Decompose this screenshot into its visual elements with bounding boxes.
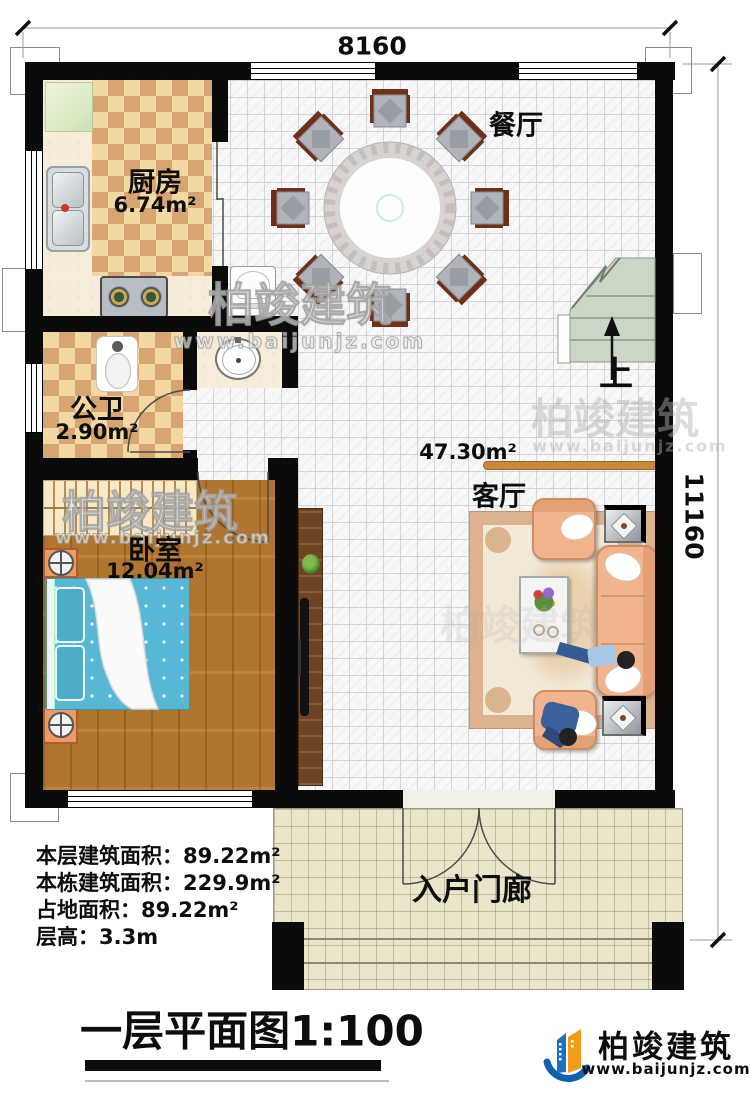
side-table-bottom-dot	[620, 715, 626, 721]
stove-burner	[140, 286, 162, 308]
window-top-1	[250, 62, 376, 80]
table-cup	[547, 626, 559, 638]
rug-corner	[485, 687, 511, 713]
porch-step-line	[303, 938, 653, 940]
armchair-top	[532, 498, 596, 560]
washbasin-drain	[236, 358, 241, 363]
brand-url: www.baijunjz.com	[581, 1060, 750, 1078]
page-title-main: 一层平面图	[80, 1007, 290, 1056]
window-bottom-bedroom	[67, 790, 253, 808]
stairs-up-label: 上	[599, 347, 633, 396]
room-label-porch: 入户门廊	[412, 865, 532, 909]
porch-step-line	[303, 962, 653, 964]
dimension-top-label: 8160	[337, 32, 407, 61]
armchair-back	[535, 736, 595, 748]
front-door-opening	[403, 790, 555, 808]
sofa-three-seat	[596, 545, 658, 697]
bed	[46, 578, 190, 710]
plant	[302, 554, 320, 574]
wall-kitchen-right-upper	[212, 80, 228, 142]
refrigerator	[230, 266, 276, 316]
sink-faucet	[61, 204, 69, 212]
window-top-2	[518, 62, 638, 80]
column-box	[673, 253, 702, 314]
info-line: 本栋建筑面积：229.9m²	[36, 870, 281, 897]
room-label-living: 客厅	[472, 475, 526, 514]
kitchen-sink	[46, 166, 90, 252]
refrigerator-top	[236, 271, 270, 299]
wall-niche-right	[282, 332, 298, 388]
stove-burner	[108, 286, 130, 308]
nightstand	[43, 548, 78, 578]
tv	[300, 598, 309, 716]
sink-basin	[52, 172, 84, 208]
room-label-dining: 餐厅	[489, 104, 543, 143]
wall-kitchen-right-lower	[212, 266, 228, 316]
squat-toilet	[96, 336, 138, 392]
page-title: 一层平面图1:100	[80, 998, 424, 1059]
refrigerator-detail	[237, 303, 269, 309]
room-area-bathroom: 2.90m²	[56, 420, 139, 444]
page-title-scale: 1:100	[290, 1007, 424, 1056]
window-left-bathroom	[25, 363, 43, 433]
floor-plan-canvas: 柏竣建筑 www.baijunjz.com 柏竣建筑 www.baijunjz.…	[0, 0, 750, 1095]
wall-kitchen-bottom	[43, 316, 298, 332]
armchair-bottom	[533, 690, 597, 750]
sink-basin	[52, 210, 84, 246]
washbasin-tap	[235, 337, 241, 343]
nightstand-knob	[48, 550, 74, 576]
info-line: 层高：3.3m	[36, 924, 281, 951]
info-line: 占地面积：89.22m²	[36, 897, 281, 924]
sofa-seat-line	[601, 595, 645, 597]
wall-bedroom-top-left	[43, 458, 198, 480]
kitchen-fridge	[45, 82, 93, 132]
toilet-pan	[105, 353, 131, 389]
sofa-pillow	[600, 547, 645, 586]
sofa-seat-line	[601, 643, 645, 645]
side-table-bottom	[602, 696, 646, 736]
nightstand	[43, 706, 78, 744]
nightstand-knob	[48, 712, 74, 738]
room-area-kitchen: 6.74m²	[114, 193, 197, 217]
rug-corner	[485, 527, 511, 553]
wall-right	[655, 62, 673, 808]
title-underline-thick	[85, 1060, 381, 1071]
kitchen-stove	[100, 276, 168, 318]
side-table-top-dot	[621, 523, 627, 529]
sofa-pillow	[601, 660, 646, 698]
info-block: 本层建筑面积：89.22m² 本栋建筑面积：229.9m² 占地面积：89.22…	[36, 843, 281, 951]
room-area-bedroom: 12.04m²	[106, 559, 204, 583]
pillow	[55, 645, 85, 701]
bed-headboard	[47, 579, 55, 709]
wall-bedroom-right	[275, 458, 298, 808]
dimension-right-label: 11160	[680, 473, 709, 560]
table-cup	[533, 624, 545, 636]
room-area-living: 47.30m²	[419, 440, 517, 464]
armchair-back	[534, 500, 594, 512]
info-line: 本层建筑面积：89.22m²	[36, 843, 281, 870]
title-underline-thin	[85, 1080, 389, 1082]
wall-bathroom-right-upper	[183, 332, 197, 390]
toilet-drain	[112, 341, 123, 352]
pillow	[55, 587, 85, 643]
porch-column-right	[652, 922, 684, 990]
washbasin	[215, 338, 261, 380]
window-left-kitchen	[25, 150, 43, 270]
armchair-cushion	[563, 707, 600, 739]
coffee-table	[519, 576, 569, 654]
side-table-top	[604, 505, 646, 543]
flower-bouquet	[529, 584, 559, 614]
armchair-cushion	[557, 510, 597, 544]
